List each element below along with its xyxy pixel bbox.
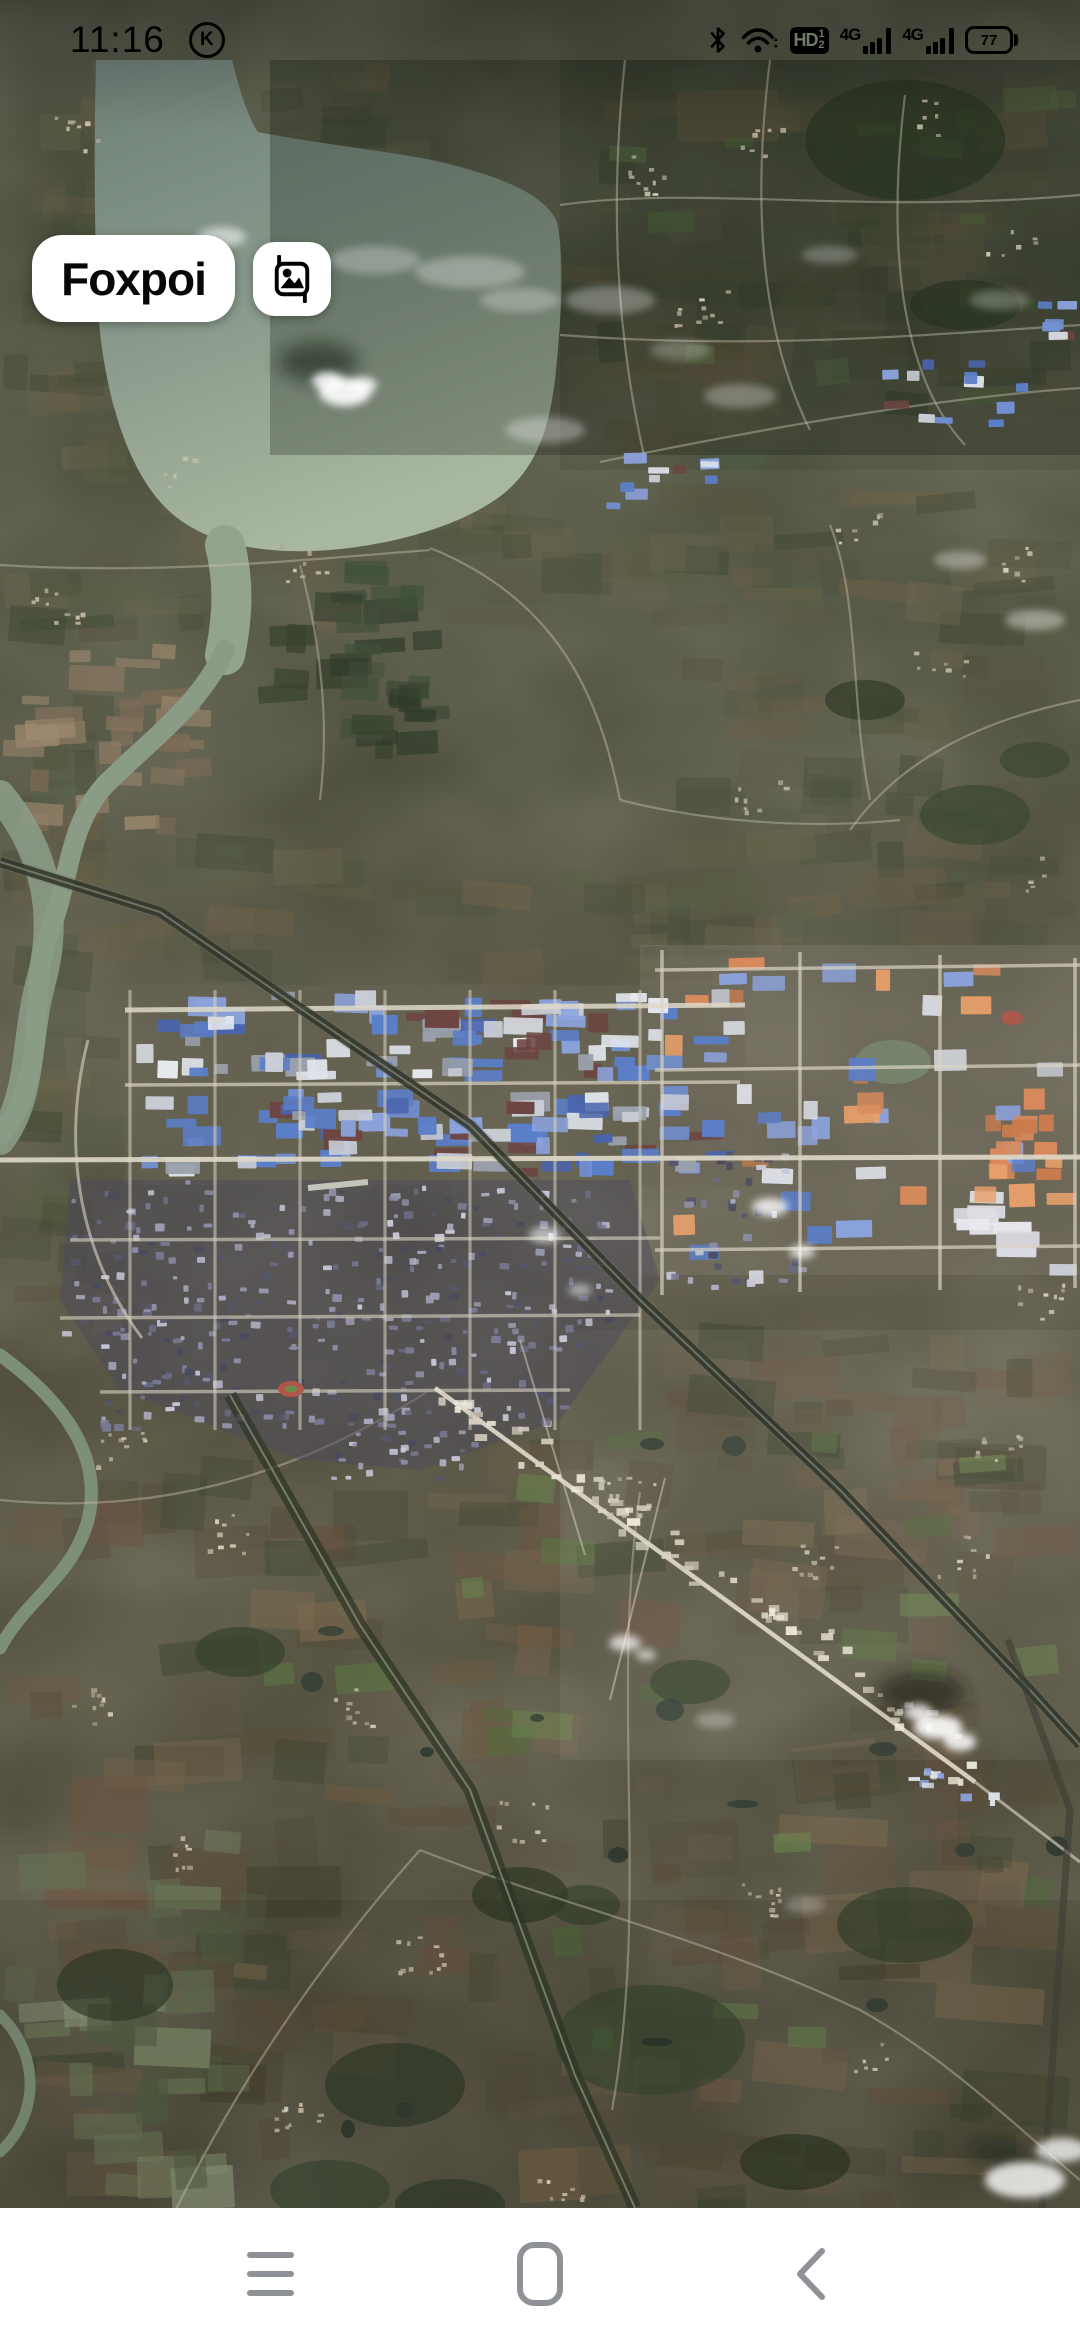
sim1-signal-bars (863, 26, 891, 54)
notification-icon-letter: K (200, 29, 214, 51)
satellite-map-view[interactable] (0, 0, 1080, 2340)
volte-hd-label: HD (794, 30, 818, 51)
back-button[interactable] (730, 2208, 890, 2340)
system-navigation-bar (0, 2208, 1080, 2340)
image-crop-icon (268, 255, 316, 303)
signal-sim2-icon: 4G (902, 26, 954, 54)
home-button[interactable] (460, 2208, 620, 2340)
map-image-capture-button[interactable] (253, 242, 331, 316)
signal-sim1-icon: 4G (840, 26, 892, 54)
foxpoi-app-button-label: Foxpoi (61, 252, 206, 306)
back-icon (793, 2246, 827, 2302)
status-bar-right: HD 1 2 4G 4G (706, 24, 1019, 56)
wifi-icon (741, 24, 779, 56)
menu-button[interactable] (190, 2208, 350, 2340)
volte-hd-icon: HD 1 2 (790, 27, 829, 54)
sim2-network-label: 4G (902, 25, 923, 45)
battery-icon: 77 (965, 26, 1018, 54)
volte-hd-sim-numbers: 1 2 (819, 29, 825, 51)
notification-icon: K (189, 22, 225, 58)
bluetooth-icon (706, 24, 730, 56)
clock-text: 11:16 (70, 19, 165, 61)
menu-icon (247, 2252, 294, 2296)
status-bar: 11:16 K HD 1 2 4G (0, 0, 1080, 74)
sim1-network-label: 4G (840, 25, 861, 45)
foxpoi-app-button[interactable]: Foxpoi (32, 235, 235, 322)
battery-nub (1014, 34, 1018, 46)
battery-percent-text: 77 (965, 26, 1013, 54)
status-bar-left: 11:16 K (70, 19, 225, 61)
home-icon (517, 2242, 563, 2306)
phone-screen: 11:16 K HD 1 2 4G (0, 0, 1080, 2340)
sim2-signal-bars (926, 26, 954, 54)
